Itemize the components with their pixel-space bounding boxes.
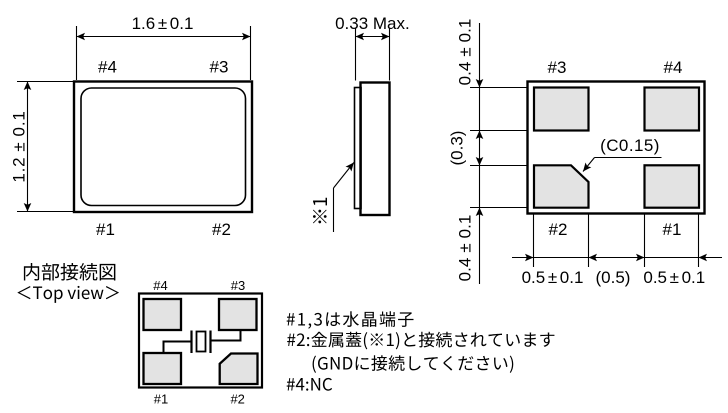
- svg-text:1.6±0.1: 1.6±0.1: [132, 14, 194, 33]
- svg-text:(C0.15): (C0.15): [600, 136, 660, 155]
- svg-text:#4: #4: [664, 58, 683, 77]
- svg-text:(0.5): (0.5): [596, 268, 631, 287]
- svg-text:#2: #2: [212, 220, 231, 239]
- svg-text:#1: #1: [154, 391, 168, 406]
- svg-text:(0.3): (0.3): [448, 131, 467, 166]
- svg-text:0.5±0.1: 0.5±0.1: [522, 268, 584, 287]
- svg-text:#4: #4: [98, 58, 117, 77]
- svg-text:#3: #3: [210, 58, 229, 77]
- svg-text:#1: #1: [663, 220, 682, 239]
- svg-text:#3: #3: [548, 58, 567, 77]
- svg-text:#2: #2: [549, 220, 568, 239]
- svg-text:0.5±0.1: 0.5±0.1: [643, 268, 705, 287]
- svg-text:#1: #1: [96, 220, 115, 239]
- svg-text:0.4±0.1: 0.4±0.1: [455, 19, 474, 86]
- svg-text:0.4±0.1: 0.4±0.1: [455, 215, 474, 282]
- svg-text:0.33 Max.: 0.33 Max.: [335, 14, 410, 33]
- svg-text:#3: #3: [231, 278, 245, 293]
- svg-text:#2: #2: [230, 391, 244, 406]
- svg-text:1.2±0.1: 1.2±0.1: [10, 110, 29, 182]
- svg-text:#4: #4: [153, 278, 167, 293]
